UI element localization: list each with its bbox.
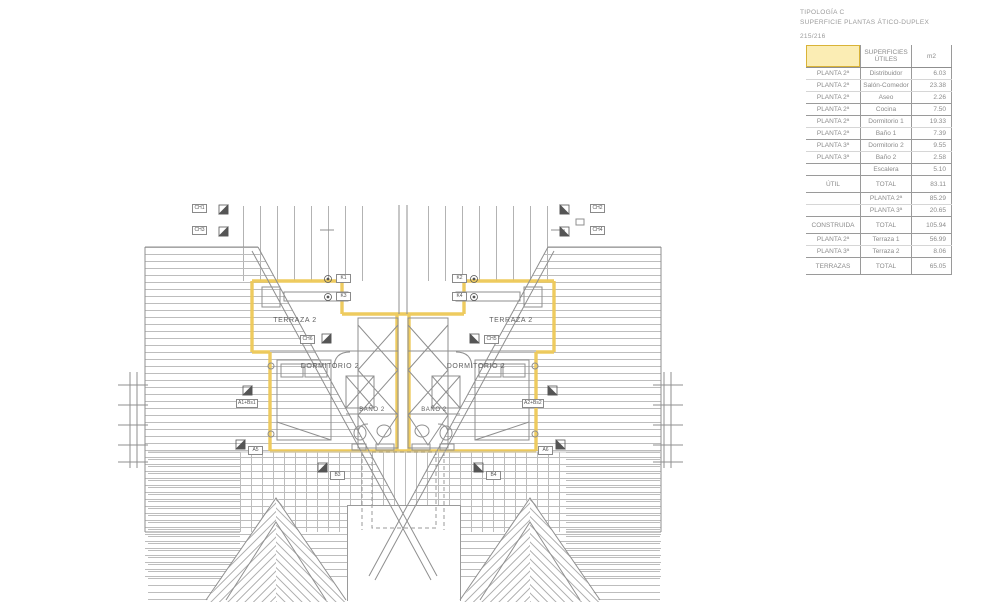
code-tag-a5: A5 <box>248 446 263 455</box>
table-cell: TERRAZAS <box>806 258 860 274</box>
table-cell: PLANTA 3ª <box>806 140 860 151</box>
table-cell: 23.38 <box>912 80 952 91</box>
table-cell: 19.33 <box>912 116 952 127</box>
table-cell: PLANTA 2ª <box>806 80 860 91</box>
typology-title: TIPOLOGÍA C <box>800 8 929 18</box>
table-cell: Cocina <box>860 104 912 115</box>
room-label-terraza-right: TERRAZA 2 <box>471 317 551 324</box>
table-row: ÚTILTOTAL83.11 <box>806 176 952 193</box>
code-tag-k2: K2 <box>452 274 467 283</box>
code-tag-ch2: CH2 <box>590 204 605 213</box>
table-cell: Baño 1 <box>860 128 912 139</box>
code-tag-a1: A1+Bs1 <box>236 399 258 408</box>
table-cell: PLANTA 2ª <box>806 116 860 127</box>
table-cell: PLANTA 3ª <box>806 246 860 257</box>
table-row: PLANTA 3ª20.65 <box>806 205 952 217</box>
table-cell: ÚTIL <box>806 176 860 192</box>
table-cell: PLANTA 2ª <box>806 68 860 79</box>
table-cell: 105.94 <box>912 217 952 233</box>
room-label-terraza-left: TERRAZA 2 <box>255 317 335 324</box>
table-cell: 65.05 <box>912 258 952 274</box>
table-row: CONSTRUIDATOTAL105.94 <box>806 217 952 234</box>
code-tag-ch5: CH5 <box>484 335 499 344</box>
header-highlight-cell <box>806 45 860 67</box>
table-cell: PLANTA 2ª <box>860 193 912 204</box>
table-row: PLANTA 3ªTerraza 28.06 <box>806 246 952 258</box>
code-tag-ch3: CH3 <box>192 226 207 235</box>
sheet-subtitle: SUPERFICIE PLANTAS ÁTICO-DUPLEX <box>800 18 929 28</box>
table-row: PLANTA 2ªBaño 17.39 <box>806 128 952 140</box>
room-label-bano-left: BAÑO 2 <box>346 407 398 413</box>
table-cell <box>806 193 860 204</box>
table-cell: 83.11 <box>912 176 952 192</box>
table-cell: PLANTA 3ª <box>806 152 860 163</box>
table-row: PLANTA 2ªDistribuidor6.03 <box>806 68 952 80</box>
table-cell: 56.99 <box>912 234 952 245</box>
table-cell: Dormitorio 1 <box>860 116 912 127</box>
table-cell: PLANTA 2ª <box>806 234 860 245</box>
table-cell: 7.50 <box>912 104 952 115</box>
table-cell <box>806 164 860 175</box>
table-row: PLANTA 2ª85.29 <box>806 193 952 205</box>
table-cell: TOTAL <box>860 176 912 192</box>
code-tag-k3: K3 <box>336 292 351 301</box>
code-tag-ch6: CH6 <box>300 335 315 344</box>
table-row: PLANTA 2ªDormitorio 119.33 <box>806 116 952 128</box>
table-row: PLANTA 3ªBaño 22.58 <box>806 152 952 164</box>
title-block: TIPOLOGÍA C SUPERFICIE PLANTAS ÁTICO-DUP… <box>800 8 929 42</box>
table-cell: Terraza 2 <box>860 246 912 257</box>
code-tag-ch4: CH4 <box>590 226 605 235</box>
table-cell: Distribuidor <box>860 68 912 79</box>
room-label-bano-right: BAÑO 2 <box>408 407 460 413</box>
table-cell: 8.06 <box>912 246 952 257</box>
table-cell: TOTAL <box>860 258 912 274</box>
plan-sheet: TERRAZA 2 TERRAZA 2 DORMITORIO 2 DORMITO… <box>0 0 1001 606</box>
table-cell: PLANTA 2ª <box>806 128 860 139</box>
room-label-dormitorio-right: DORMITORIO 2 <box>446 363 506 370</box>
table-cell: 6.03 <box>912 68 952 79</box>
header-m2: m2 <box>912 45 952 67</box>
table-cell: Dormitorio 2 <box>860 140 912 151</box>
table-cell: Escalera <box>860 164 912 175</box>
table-cell: 2.58 <box>912 152 952 163</box>
highlighted-walls <box>252 281 554 451</box>
table-cell: 2.26 <box>912 92 952 103</box>
table-cell: CONSTRUIDA <box>806 217 860 233</box>
code-tag-k1: K1 <box>336 274 351 283</box>
table-row: PLANTA 2ªCocina7.50 <box>806 104 952 116</box>
table-cell: Terraza 1 <box>860 234 912 245</box>
sheet-number: 215/216 <box>800 32 929 42</box>
dashed-void-outline <box>362 452 444 530</box>
table-cell <box>806 205 860 216</box>
table-row: PLANTA 2ªAseo2.26 <box>806 92 952 104</box>
table-cell: 5.10 <box>912 164 952 175</box>
code-tag-b4: B4 <box>486 471 501 480</box>
code-tag-b3: B3 <box>330 471 345 480</box>
table-cell: PLANTA 2ª <box>806 92 860 103</box>
table-row: PLANTA 2ªSalón-Comedor23.38 <box>806 80 952 92</box>
table-cell: PLANTA 3ª <box>860 205 912 216</box>
table-row: Escalera5.10 <box>806 164 952 176</box>
table-cell: 7.39 <box>912 128 952 139</box>
code-tag-a2: A2+Bs2 <box>522 399 544 408</box>
table-cell: PLANTA 2ª <box>806 104 860 115</box>
table-cell: Baño 2 <box>860 152 912 163</box>
header-superficies: SUPERFICIES ÚTILES <box>860 45 912 67</box>
areas-table: SUPERFICIES ÚTILES m2 PLANTA 2ªDistribui… <box>806 45 952 275</box>
table-cell: 85.29 <box>912 193 952 204</box>
areas-table-body: PLANTA 2ªDistribuidor6.03PLANTA 2ªSalón-… <box>806 68 952 275</box>
table-cell: Aseo <box>860 92 912 103</box>
room-label-dormitorio-left: DORMITORIO 2 <box>300 363 360 370</box>
table-cell: 9.55 <box>912 140 952 151</box>
table-row: PLANTA 2ªTerraza 156.99 <box>806 234 952 246</box>
code-tag-k4: K4 <box>452 292 467 301</box>
table-cell: Salón-Comedor <box>860 80 912 91</box>
table-cell: 20.65 <box>912 205 952 216</box>
code-tag-ch1: CH1 <box>192 204 207 213</box>
code-tag-a6: A6 <box>538 446 553 455</box>
areas-table-header: SUPERFICIES ÚTILES m2 <box>806 45 952 68</box>
table-row: TERRAZASTOTAL65.05 <box>806 258 952 275</box>
table-row: PLANTA 3ªDormitorio 29.55 <box>806 140 952 152</box>
table-cell: TOTAL <box>860 217 912 233</box>
